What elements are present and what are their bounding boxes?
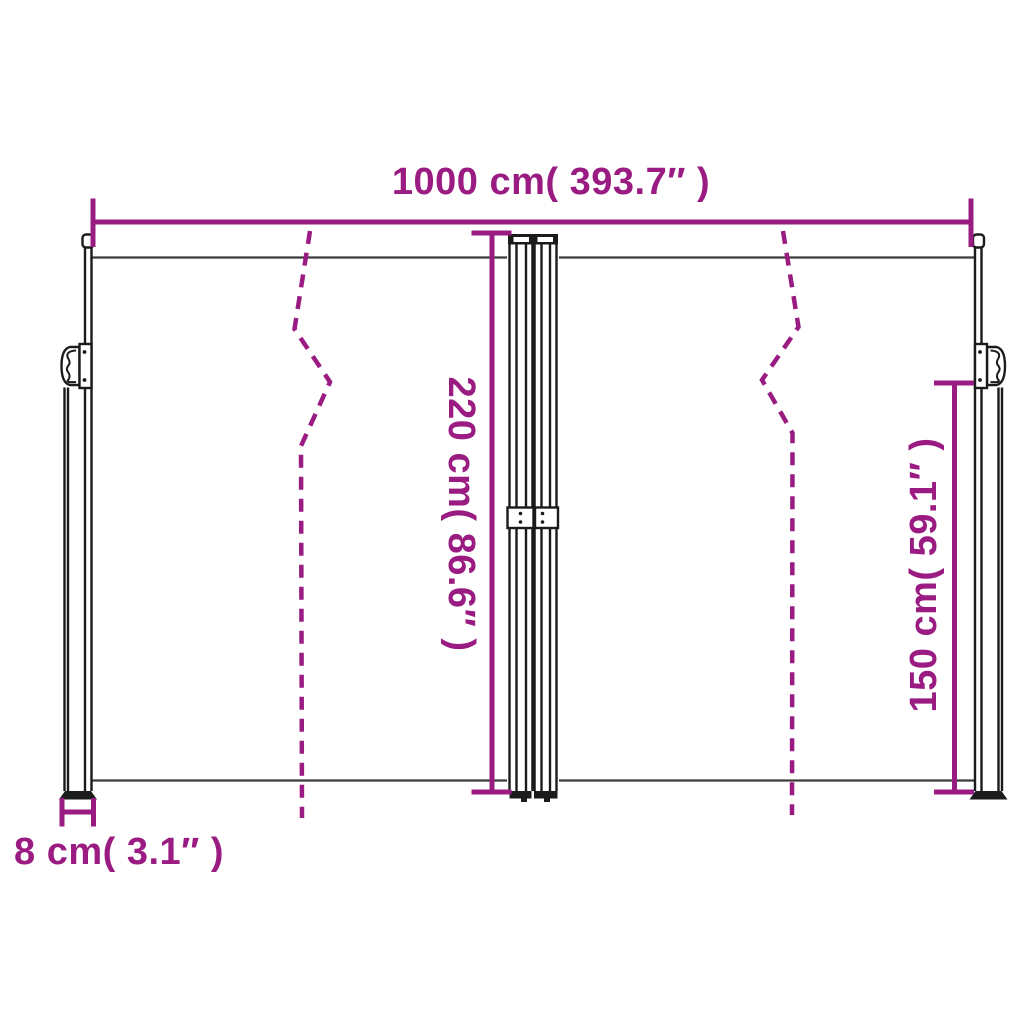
fold-line-right: [762, 231, 799, 815]
pole-depth-dimension-line: [62, 798, 94, 827]
cassette-top-cap: [508, 234, 558, 245]
pole-depth-dimension-label: 8 cm( 3.1″ ): [14, 833, 224, 871]
fold-line-left: [295, 231, 331, 818]
cassette-mid-bracket: [508, 508, 559, 529]
right-pole-cap: [973, 235, 984, 248]
product-dimension-diagram: 1000 cm( 393.7″ ) 220 cm( 86.6″ ) 150 cm…: [0, 0, 1024, 1024]
right-pole-handle: [975, 344, 1005, 388]
left-pole-handle: [62, 344, 92, 388]
width-dimension-label: 1000 cm( 393.7″ ): [392, 163, 710, 201]
height-dimension-label: 220 cm( 86.6″ ): [442, 377, 480, 652]
center-cassette: [507, 234, 559, 802]
left-pole: [59, 235, 97, 800]
pole-height-dimension-label: 150 cm( 59.1″ ): [905, 438, 943, 713]
right-pole-foot: [970, 791, 1008, 800]
right-pole: [970, 235, 1008, 800]
